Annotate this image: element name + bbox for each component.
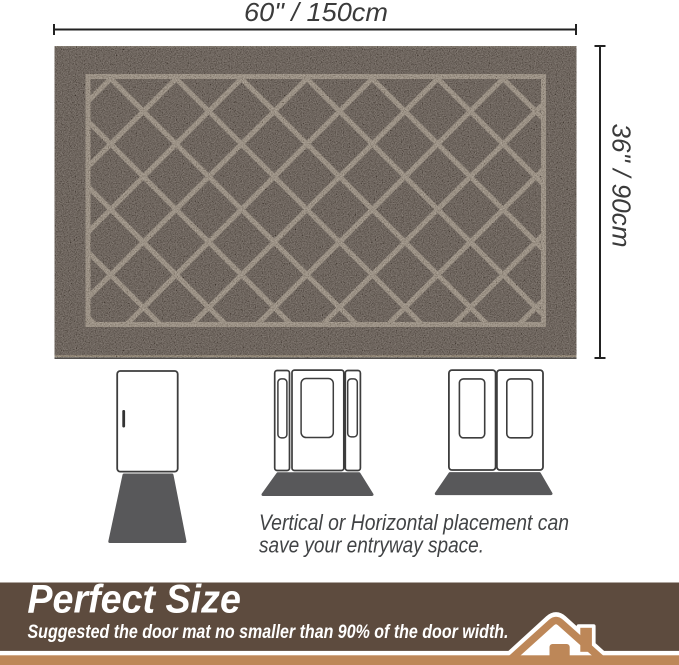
svg-text:Vertical or Horizontal placeme: Vertical or Horizontal placement can bbox=[259, 510, 569, 535]
svg-text:36" / 90cm: 36" / 90cm bbox=[607, 124, 637, 248]
svg-text:Suggested the door mat no smal: Suggested the door mat no smaller than 9… bbox=[28, 622, 509, 643]
svg-text:Perfect Size: Perfect Size bbox=[27, 577, 241, 621]
svg-text:60" / 150cm: 60" / 150cm bbox=[244, 0, 388, 27]
svg-text:save your entryway space.: save your entryway space. bbox=[259, 533, 484, 558]
